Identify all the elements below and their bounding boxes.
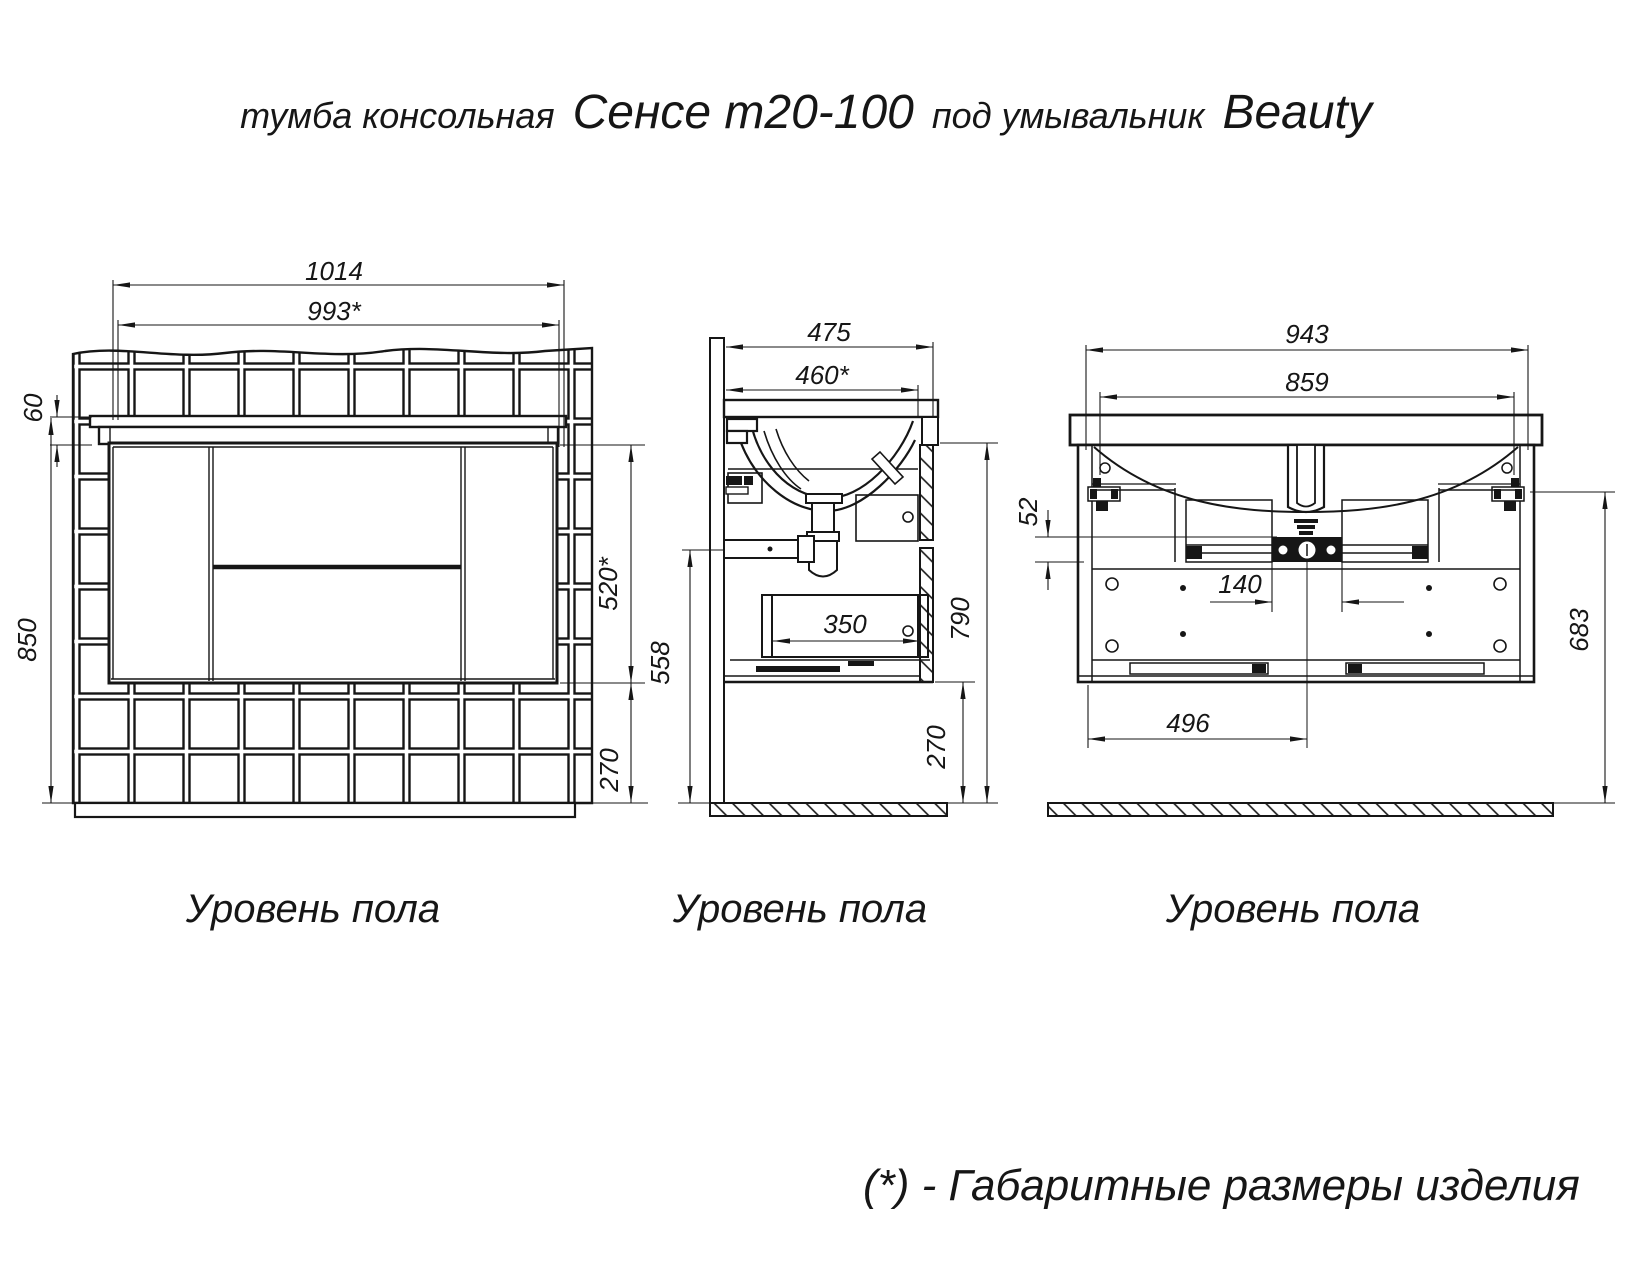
floor-strip-back (1048, 803, 1553, 816)
drawing-title: тумба консольная Сенсе т20-100 под умыва… (240, 86, 1375, 139)
countertop-apron (99, 427, 558, 444)
dim-cabinet-height: 520* (593, 556, 623, 610)
title-part2: Сенсе т20-100 (573, 86, 915, 139)
title-part4: Beauty (1222, 86, 1374, 139)
dim-front-height: 790 (945, 597, 975, 641)
front-view: 1014 993* 60 850 520* 270 Уровень пола (12, 256, 648, 931)
footnote: (*) - Габаритные размеры изделия (863, 1161, 1580, 1210)
dim-counter-height: 60 (18, 393, 48, 422)
dim-mount-width: 943 (1285, 319, 1329, 349)
back-countertop (1070, 415, 1542, 445)
dim-drawer-depth: 350 (823, 609, 867, 639)
dim-total-depth: 475 (807, 317, 851, 347)
front-floor-label: Уровень пола (185, 887, 440, 931)
cabinet-front (109, 443, 557, 683)
dim-product-depth: 460* (795, 360, 849, 390)
technical-drawing: тумба консольная Сенсе т20-100 под умыва… (0, 0, 1650, 1275)
dim-drain-height: 558 (645, 641, 675, 685)
dim-inner-width: 859 (1285, 367, 1328, 397)
side-floor-label: Уровень пола (672, 887, 927, 931)
dim-drain-plate-width: 140 (1218, 569, 1262, 599)
dim-side-floor-gap: 270 (921, 725, 951, 770)
side-countertop-edge (922, 417, 938, 445)
dim-total-width: 1014 (305, 256, 363, 286)
drain-pipe (724, 540, 804, 558)
side-front-panels (920, 445, 933, 682)
back-floor-label: Уровень пола (1165, 887, 1420, 931)
dim-mount-height: 683 (1564, 608, 1594, 652)
dim-total-height: 850 (12, 618, 42, 662)
title-part1: тумба консольная (240, 95, 555, 136)
dim-rail-offset: 52 (1013, 497, 1043, 526)
countertop-plank (90, 416, 566, 427)
side-countertop (724, 400, 938, 417)
siphon (724, 494, 842, 577)
side-wall (710, 338, 724, 803)
title-part3: под умывальник (932, 95, 1207, 136)
dim-product-width: 993* (307, 296, 361, 326)
side-view: 475 460* 558 350 790 270 Уровень пола (645, 317, 998, 931)
back-view: 943 859 52 140 496 683 Уровень пола (1013, 319, 1615, 931)
floor-strip-side (710, 803, 947, 816)
dim-drain-offset: 496 (1166, 708, 1210, 738)
floor-strip-front (75, 803, 575, 817)
drawing-page: тумба консольная Сенсе т20-100 под умыва… (0, 0, 1650, 1275)
dim-front-floor-gap: 270 (594, 748, 624, 793)
